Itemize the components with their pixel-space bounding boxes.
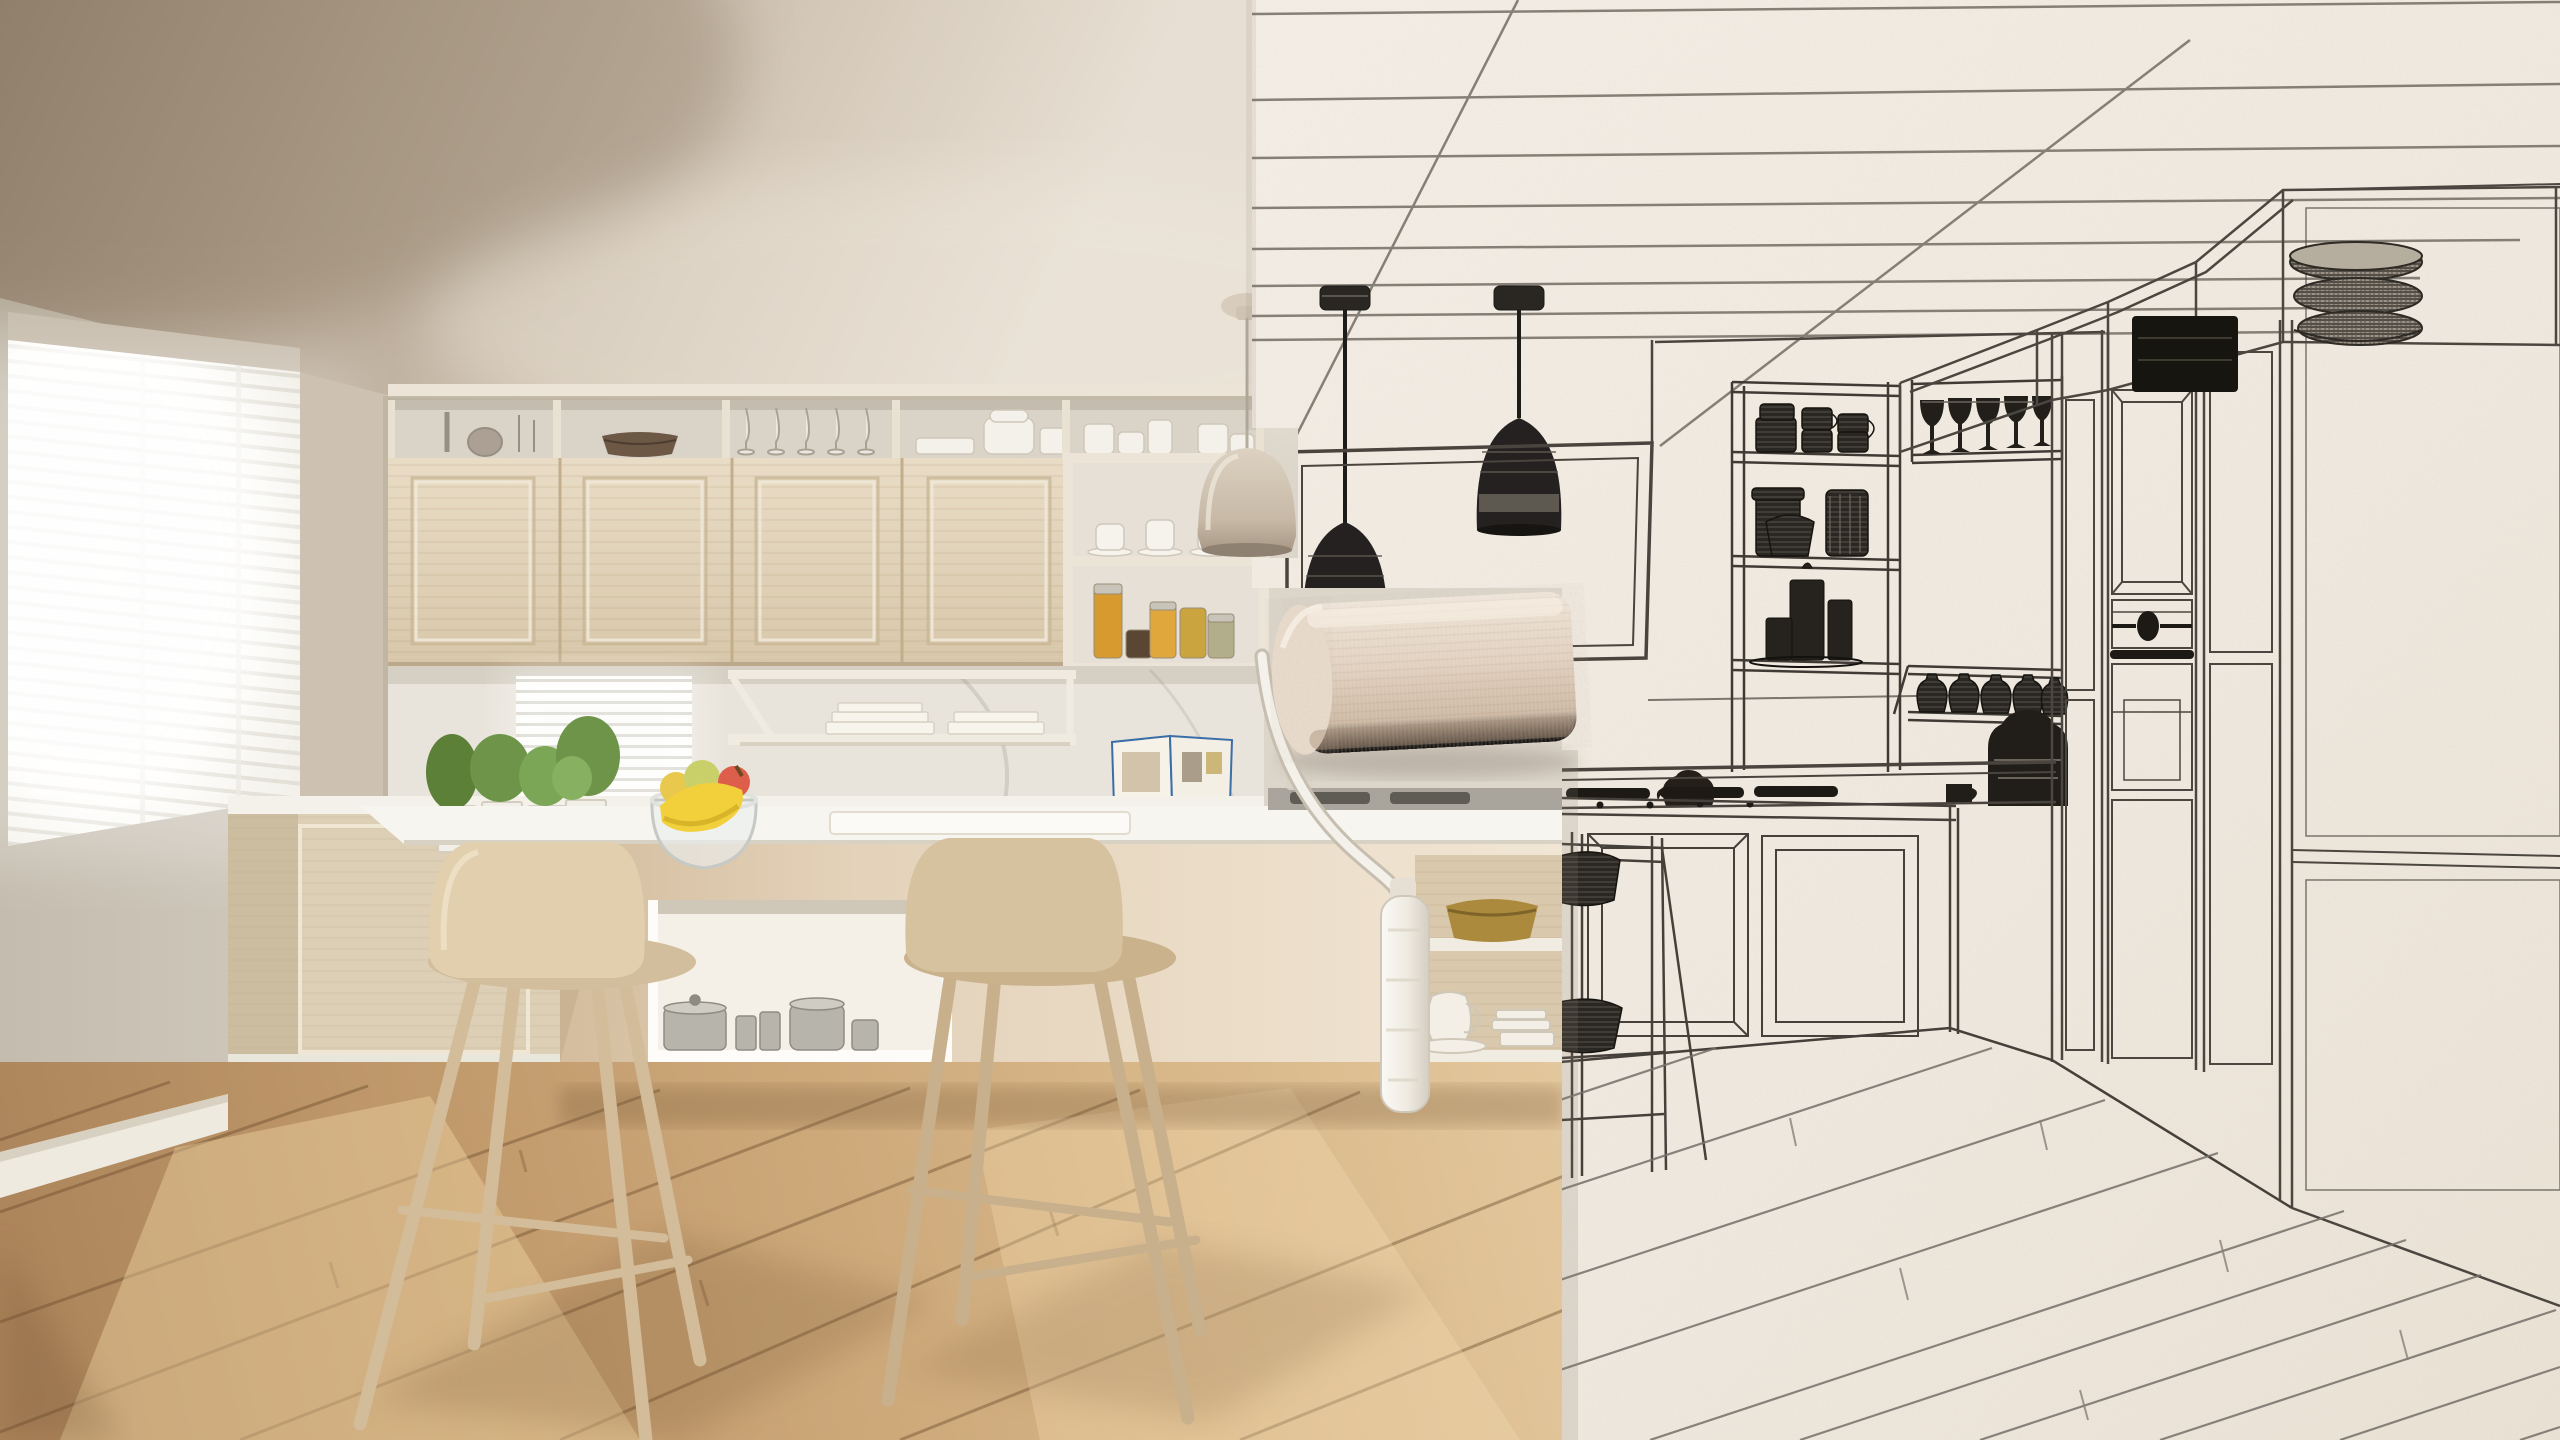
glass-display-row <box>388 400 1264 458</box>
paint-edge-shadow <box>1246 0 1256 430</box>
basket-stack <box>2290 242 2422 345</box>
window-glow <box>0 360 350 860</box>
roller-grip <box>1381 878 1429 1112</box>
window-left <box>0 300 350 860</box>
cabinet-side-panel <box>300 372 390 814</box>
island-end-shelves <box>1415 855 1564 1072</box>
stool-backrest <box>905 838 1122 972</box>
paint-edge-shadow <box>1562 750 1578 1440</box>
wooden-cabinet-doors <box>388 458 1078 667</box>
cutting-board <box>830 812 1130 834</box>
black-box <box>2132 316 2238 392</box>
fruit-bowl <box>652 760 756 868</box>
display-wicker-bowl <box>602 432 678 457</box>
cookbook <box>1112 736 1232 806</box>
concept-image-kitchen-photo-vs-sketch <box>0 0 2560 1440</box>
brass-bowl <box>1446 899 1538 942</box>
upper-cabinets <box>388 384 1264 668</box>
cabinet-crown <box>388 384 1264 398</box>
wood-floor <box>0 1062 1580 1440</box>
roller-head <box>1268 591 1577 757</box>
oven-handle <box>2110 650 2194 659</box>
scene-canvas <box>0 0 2560 1440</box>
